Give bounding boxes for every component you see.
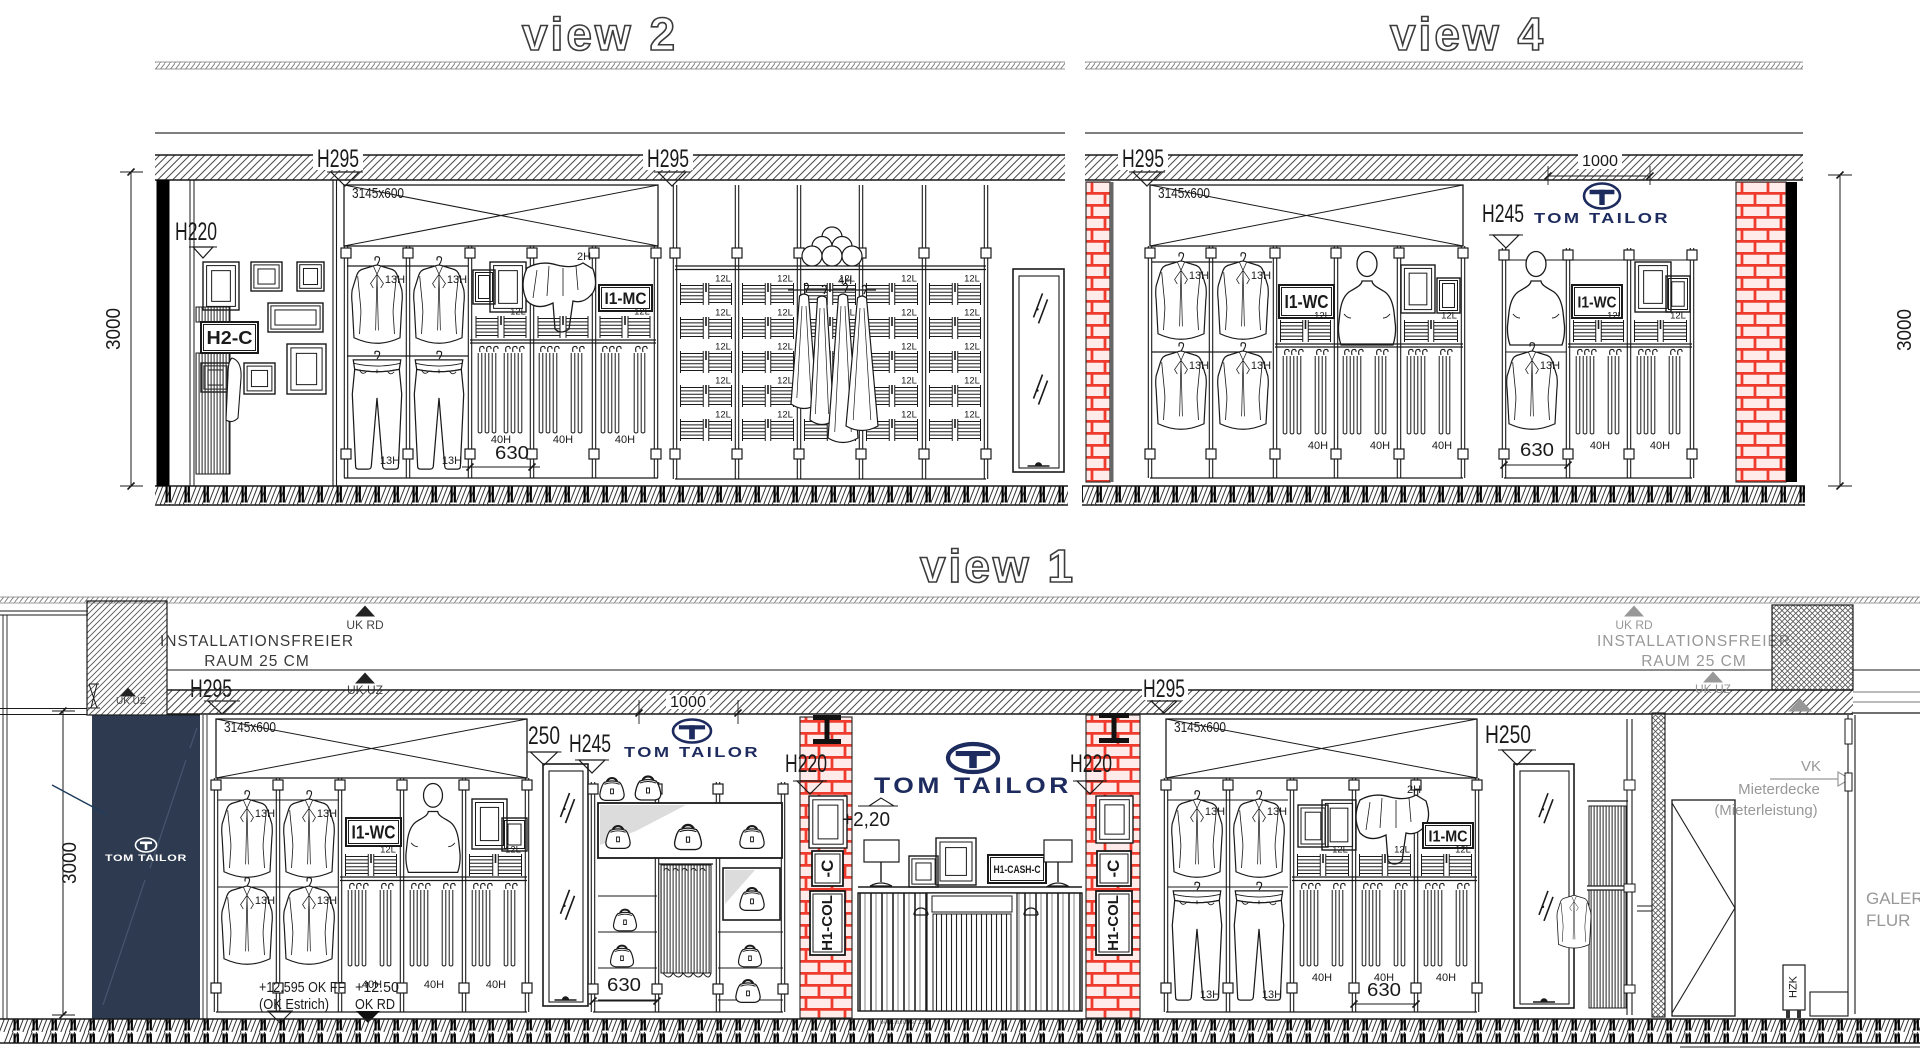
svg-text:3000: 3000 (103, 308, 125, 350)
svg-text:H295: H295 (1122, 145, 1164, 173)
svg-text:H220: H220 (175, 218, 217, 246)
svg-text:H295: H295 (647, 145, 689, 173)
svg-text:12L: 12L (1455, 845, 1471, 856)
svg-text:630: 630 (1367, 980, 1401, 1000)
svg-text:12L: 12L (964, 410, 980, 421)
svg-text:H1-COL: H1-COL (819, 895, 836, 951)
svg-text:H1-COL: H1-COL (1105, 895, 1122, 951)
svg-text:13H: 13H (380, 455, 400, 467)
svg-text:12L: 12L (1670, 311, 1686, 322)
svg-text:40H: 40H (1590, 440, 1610, 452)
svg-text:12L: 12L (715, 410, 731, 421)
svg-text:3000: 3000 (59, 842, 81, 884)
svg-text:13H: 13H (255, 895, 275, 907)
svg-text:13H: 13H (447, 274, 467, 286)
svg-text:13H: 13H (385, 274, 405, 286)
svg-text:13H: 13H (317, 895, 337, 907)
svg-text:630: 630 (495, 443, 529, 463)
svg-text:12L: 12L (777, 342, 793, 353)
svg-text:13H: 13H (1189, 270, 1209, 282)
svg-text:I1-MC: I1-MC (1429, 828, 1468, 845)
svg-text:+12.50: +12.50 (355, 980, 399, 996)
svg-text:12L: 12L (1607, 311, 1623, 322)
svg-text:3145x600: 3145x600 (1174, 719, 1226, 736)
svg-text:13H: 13H (1267, 806, 1287, 818)
svg-text:TOM TAILOR: TOM TAILOR (105, 853, 187, 863)
svg-text:1000: 1000 (1582, 153, 1618, 170)
svg-text:40H: 40H (1432, 440, 1452, 452)
svg-text:UK UZ: UK UZ (116, 696, 146, 707)
svg-text:12L: 12L (634, 307, 650, 318)
svg-text:H220: H220 (1070, 750, 1112, 778)
svg-text:+12.595 OK FF: +12.595 OK FF (259, 980, 345, 996)
svg-text:40H: 40H (1308, 440, 1328, 452)
svg-text:12L: 12L (380, 845, 396, 856)
svg-text:13H: 13H (442, 455, 462, 467)
svg-text:FLUR: FLUR (1866, 911, 1910, 930)
svg-text:630: 630 (607, 975, 641, 995)
svg-text:INSTALLATIONSFREIER: INSTALLATIONSFREIER (160, 633, 354, 650)
svg-text:-C: -C (818, 860, 837, 878)
svg-text:13H: 13H (1540, 360, 1560, 372)
svg-text:view 4: view 4 (1390, 8, 1546, 60)
svg-text:13H: 13H (1251, 360, 1271, 372)
svg-text:(Mieterleistung): (Mieterleistung) (1714, 802, 1817, 819)
svg-text:HZK: HZK (1788, 975, 1800, 998)
svg-text:12L: 12L (1332, 845, 1348, 856)
svg-text:12L: 12L (777, 376, 793, 387)
svg-text:I1-WC: I1-WC (1578, 294, 1617, 311)
svg-text:12L: 12L (777, 274, 793, 285)
svg-text:12L: 12L (901, 274, 917, 285)
svg-text:13H: 13H (317, 808, 337, 820)
svg-text:view 2: view 2 (522, 8, 678, 60)
svg-text:+2,20: +2,20 (842, 809, 890, 831)
svg-text:13H: 13H (1262, 989, 1282, 1001)
svg-text:VK: VK (1801, 758, 1821, 775)
svg-text:TOM TAILOR: TOM TAILOR (1534, 210, 1670, 227)
svg-text:12L: 12L (1314, 311, 1330, 322)
svg-text:12L: 12L (1441, 311, 1457, 322)
svg-text:40H: 40H (1370, 440, 1390, 452)
svg-text:40H: 40H (1650, 440, 1670, 452)
svg-text:RAUM 25 CM: RAUM 25 CM (204, 653, 310, 670)
svg-text:40H: 40H (1436, 972, 1456, 984)
svg-text:TOM TAILOR: TOM TAILOR (874, 773, 1072, 798)
svg-text:H245: H245 (1482, 200, 1524, 228)
svg-text:630: 630 (1520, 440, 1554, 460)
svg-text:13H: 13H (255, 808, 275, 820)
svg-text:40H: 40H (1312, 972, 1332, 984)
svg-text:H220: H220 (785, 750, 827, 778)
svg-text:2H: 2H (577, 251, 591, 263)
svg-text:Mieterdecke: Mieterdecke (1738, 781, 1820, 798)
svg-text:12L: 12L (901, 410, 917, 421)
svg-text:H2-C: H2-C (207, 328, 253, 348)
svg-text:40H: 40H (424, 979, 444, 991)
svg-text:2H: 2H (1407, 784, 1421, 796)
svg-text:12L: 12L (715, 308, 731, 319)
svg-text:UK UZ: UK UZ (1695, 682, 1731, 696)
svg-text:12L: 12L (715, 376, 731, 387)
svg-text:12L: 12L (839, 274, 855, 285)
svg-text:H250: H250 (1485, 721, 1531, 749)
svg-text:12L: 12L (901, 308, 917, 319)
svg-text:12L: 12L (505, 845, 521, 856)
svg-text:H295: H295 (317, 145, 359, 173)
svg-text:12L: 12L (777, 410, 793, 421)
svg-text:RAUM 25 CM: RAUM 25 CM (1641, 653, 1747, 670)
svg-text:UK RD: UK RD (1615, 618, 1653, 632)
svg-text:view 1: view 1 (920, 540, 1076, 592)
svg-text:1000: 1000 (670, 694, 706, 711)
svg-text:OK RD: OK RD (355, 997, 395, 1013)
svg-text:13H: 13H (1205, 806, 1225, 818)
svg-text:40H: 40H (486, 979, 506, 991)
svg-text:13H: 13H (1200, 989, 1220, 1001)
svg-text:12L: 12L (964, 308, 980, 319)
svg-text:12L: 12L (1394, 845, 1410, 856)
svg-text:I1-WC: I1-WC (352, 822, 396, 842)
svg-text:UK RD: UK RD (346, 618, 384, 632)
svg-text:12L: 12L (964, 342, 980, 353)
svg-text:12L: 12L (715, 342, 731, 353)
svg-text:13H: 13H (1251, 270, 1271, 282)
svg-text:12L: 12L (510, 307, 526, 318)
svg-text:40H: 40H (615, 434, 635, 446)
svg-text:3145x600: 3145x600 (1158, 185, 1210, 202)
svg-text:250: 250 (528, 722, 560, 750)
svg-text:12L: 12L (901, 376, 917, 387)
svg-text:GALERIE: GALERIE (1866, 889, 1920, 908)
svg-text:INSTALLATIONSFREIER: INSTALLATIONSFREIER (1597, 633, 1791, 650)
svg-text:40H: 40H (553, 434, 573, 446)
svg-text:12L: 12L (964, 274, 980, 285)
svg-text:3000: 3000 (1894, 309, 1916, 351)
svg-text:H1-CASH-C: H1-CASH-C (994, 864, 1041, 876)
svg-text:3145x600: 3145x600 (352, 185, 404, 202)
svg-text:H245: H245 (569, 730, 611, 758)
svg-text:13H: 13H (1189, 360, 1209, 372)
svg-text:I1-WC: I1-WC (1285, 292, 1329, 312)
svg-text:I1-MC: I1-MC (605, 289, 647, 308)
svg-text:3145x600: 3145x600 (224, 719, 276, 736)
svg-text:TOM TAILOR: TOM TAILOR (624, 744, 760, 761)
svg-text:12L: 12L (901, 342, 917, 353)
svg-text:12L: 12L (715, 274, 731, 285)
svg-text:12L: 12L (777, 308, 793, 319)
svg-text:-C: -C (1104, 860, 1123, 878)
svg-text:12L: 12L (964, 376, 980, 387)
svg-text:H295: H295 (1143, 675, 1185, 703)
